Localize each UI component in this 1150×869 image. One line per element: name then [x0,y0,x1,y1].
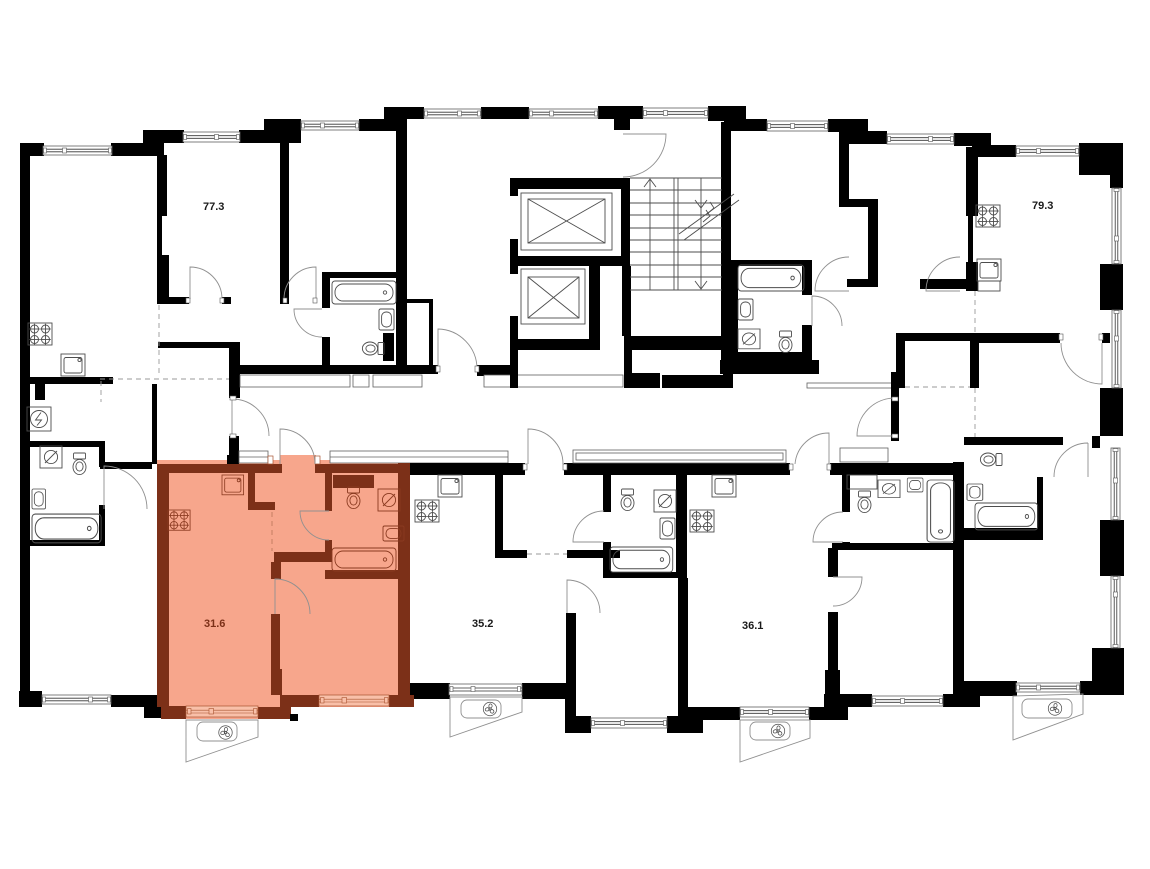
svg-text:36.1: 36.1 [742,620,763,632]
svg-text:35.2: 35.2 [472,618,493,630]
svg-text:79.3: 79.3 [1032,200,1053,212]
svg-text:31.6: 31.6 [204,618,225,630]
svg-text:77.3: 77.3 [203,201,224,213]
